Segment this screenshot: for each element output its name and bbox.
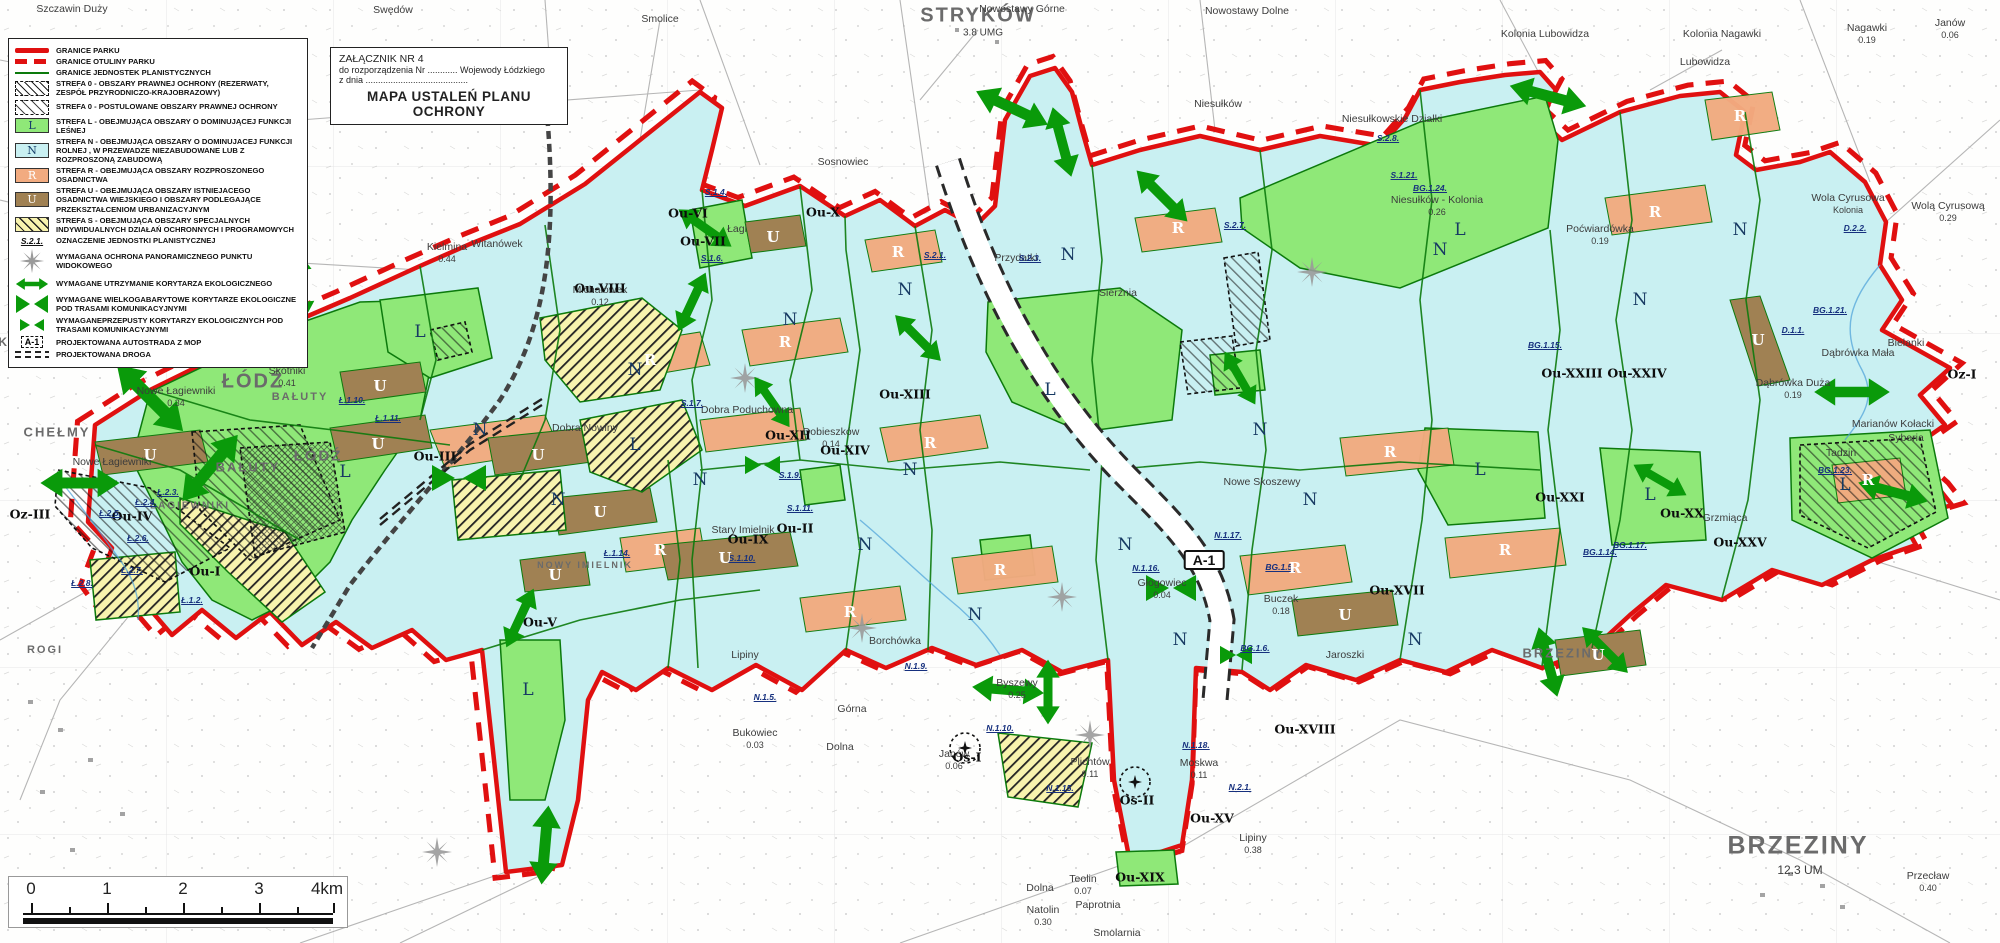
legend-label: STREFA 0 - OBSZARY PRAWNEJ OCHRONY (REZE… <box>56 79 301 97</box>
culvert-triangles-icon <box>15 318 49 332</box>
scale-numbers: 0 1 2 3 4km <box>9 877 347 901</box>
legend-label: STREFA 0 - POSTULOWANE OBSZARY PRAWNEJ O… <box>56 102 278 111</box>
legend-label: PROJEKTOWANA AUTOSTRADA Z MOP <box>56 338 201 347</box>
corridor-arrow-icon <box>15 276 49 292</box>
zone-r-swatch: R <box>15 168 49 183</box>
legend-label: OZNACZENIE JEDNOSTKI PLANISTYCZNEJ <box>56 236 215 245</box>
zone-u-swatch: U <box>15 192 49 207</box>
legend-label: STREFA U - OBEJMUJĄCA OBSZARY ISTNIEJACE… <box>56 186 301 213</box>
legend-item-viewpoint: WYMAGANA OCHRONA PANORAMICZNEGO PUNKTU W… <box>15 248 301 274</box>
legend-item-culverts: WYMAGANEPRZEPUSTY KORYTARZY EKOLOGICZNYC… <box>15 316 301 334</box>
scale-tick-label: 4km <box>311 879 343 899</box>
legend-panel: GRANICE PARKU GRANICE OTULINY PARKU GRAN… <box>8 38 308 368</box>
viewpoint-star-icon <box>15 248 49 274</box>
legend-item-zone-n: N STREFA N - OBEJMUJĄCA OBSZARY O DOMINU… <box>15 137 301 164</box>
legend-label: WYMAGANEPRZEPUSTY KORYTARZY EKOLOGICZNYC… <box>56 316 301 334</box>
motorway-swatch: A-1 <box>15 336 49 348</box>
zone-s-swatch <box>15 217 49 232</box>
legend-item-large-corridor: WYMAGANE WIELKOGABARYTOWE KORYTARZE EKOL… <box>15 294 301 314</box>
legend-item-zone-r: R STREFA R - OBEJMUJĄCA OBSZARY ROZPROSZ… <box>15 166 301 184</box>
legend-label: WYMAGANE WIELKOGABARYTOWE KORYTARZE EKOL… <box>56 295 301 313</box>
legend-item-buffer-boundary: GRANICE OTULINY PARKU <box>15 57 301 66</box>
legend-item-zone-s: STREFA S - OBEJMUJĄCA OBSZARY SPECJALNYC… <box>15 216 301 234</box>
scale-ticks <box>23 901 333 915</box>
legend-label: GRANICE JEDNOSTEK PLANISTYCZNYCH <box>56 68 211 77</box>
map-title: MAPA USTALEŃ PLANU OCHRONY <box>339 89 559 119</box>
regulation-line: do rozporządzenia Nr ............ Wojewo… <box>339 65 559 75</box>
legend-label: STREFA R - OBEJMUJĄCA OBSZARY ROZPROSZON… <box>56 166 301 184</box>
legend-label: GRANICE OTULINY PARKU <box>56 57 155 66</box>
title-box: ZAŁĄCZNIK NR 4 do rozporządzenia Nr ....… <box>330 47 568 125</box>
legend-item-unit-code: S.2.1. OZNACZENIE JEDNOSTKI PLANISTYCZNE… <box>15 236 301 246</box>
scale-tick-label: 0 <box>26 879 35 899</box>
zone-l-swatch: L <box>15 118 49 133</box>
buffer-boundary-swatch <box>15 59 49 64</box>
scale-tick-label: 2 <box>178 879 187 899</box>
legend-item-zone-u: U STREFA U - OBEJMUJĄCA OBSZARY ISTNIEJA… <box>15 186 301 213</box>
legend-item-park-boundary: GRANICE PARKU <box>15 46 301 55</box>
park-boundary-swatch <box>15 48 49 53</box>
legend-item-motorway: A-1 PROJEKTOWANA AUTOSTRADA Z MOP <box>15 336 301 348</box>
legend-label: GRANICE PARKU <box>56 46 120 55</box>
legend-label: WYMAGANA OCHRONA PANORAMICZNEGO PUNKTU W… <box>56 252 301 270</box>
legend-item-zone0-postulated: STREFA 0 - POSTULOWANE OBSZARY PRAWNEJ O… <box>15 100 301 115</box>
map-page: STRYKÓW3.8 UMGBRZEZINY12.3 UMBRZEZINYŁÓD… <box>0 0 2000 943</box>
zone0-postulated-swatch <box>15 100 49 115</box>
legend-item-zone0-legal: STREFA 0 - OBSZARY PRAWNEJ OCHRONY (REZE… <box>15 79 301 97</box>
scale-tick-label: 1 <box>102 879 111 899</box>
scale-bar-rule <box>23 918 333 924</box>
legend-label: STREFA N - OBEJMUJĄCA OBSZARY O DOMINUJA… <box>56 137 301 164</box>
legend-label: PROJEKTOWANA DROGA <box>56 350 151 359</box>
unit-boundary-swatch <box>15 72 49 74</box>
projected-road-swatch <box>15 351 49 359</box>
scale-tick-label: 3 <box>254 879 263 899</box>
legend-item-road: PROJEKTOWANA DROGA <box>15 350 301 359</box>
legend-item-zone-l: L STREFA L - OBEJMUJĄCA OBSZARY O DOMINU… <box>15 117 301 135</box>
legend-label: STREFA S - OBEJMUJĄCA OBSZARY SPECJALNYC… <box>56 216 301 234</box>
zone0-legal-swatch <box>15 81 49 96</box>
legend-list: GRANICE PARKU GRANICE OTULINY PARKU GRAN… <box>15 46 301 359</box>
large-corridor-triangles-icon <box>15 294 49 314</box>
date-line: z dnia .................................… <box>339 75 559 85</box>
legend-item-unit-boundary: GRANICE JEDNOSTEK PLANISTYCZNYCH <box>15 68 301 77</box>
legend-item-corridor: WYMAGANE UTRZYMANIE KORYTARZA EKOLOGICZN… <box>15 276 301 292</box>
unit-code-swatch: S.2.1. <box>15 236 49 246</box>
legend-label: WYMAGANE UTRZYMANIE KORYTARZA EKOLOGICZN… <box>56 279 272 288</box>
attachment-number: ZAŁĄCZNIK NR 4 <box>339 53 559 65</box>
scale-bar: 0 1 2 3 4km <box>8 876 348 928</box>
zone-n-swatch: N <box>15 143 49 158</box>
legend-label: STREFA L - OBEJMUJĄCA OBSZARY O DOMINUJĄ… <box>56 117 301 135</box>
